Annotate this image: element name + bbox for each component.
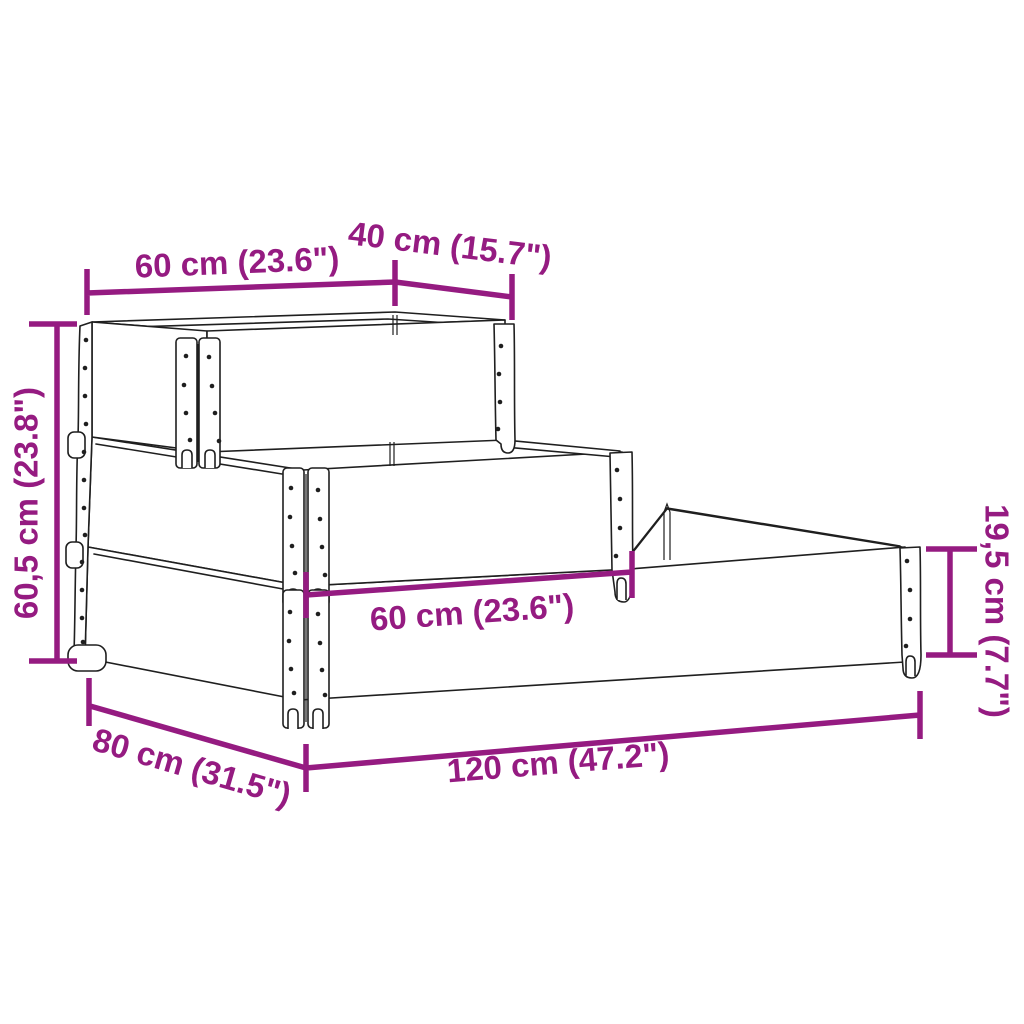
top-width-label: 40 cm (15.7") — [346, 214, 554, 276]
total-height-label: 60,5 cm (23.8") — [8, 387, 45, 619]
top-front-corner-post — [176, 338, 221, 468]
bottom-right-corner-post — [900, 547, 921, 678]
base-length-label: 120 cm (47.2") — [445, 735, 670, 790]
dimension-diagram-svg: 60 cm (23.6") 40 cm (15.7") 60,5 cm (23.… — [0, 0, 1024, 1024]
raised-bed-drawing — [66, 312, 921, 729]
middle-back-corner-hinge — [390, 442, 394, 466]
top-tier — [92, 312, 505, 452]
top-right-corner-post — [494, 324, 515, 453]
collar-height-label: 19,5 cm (7.7") — [979, 504, 1016, 718]
dim-line-collar-height — [926, 549, 977, 655]
middle-tier-front-right-face — [303, 452, 630, 586]
middle-tier-top-rim-right — [505, 440, 620, 457]
top-length-label: 60 cm (23.6") — [134, 239, 340, 284]
product-dimension-diagram: 60 cm (23.6") 40 cm (15.7") 60,5 cm (23.… — [0, 0, 1024, 1024]
